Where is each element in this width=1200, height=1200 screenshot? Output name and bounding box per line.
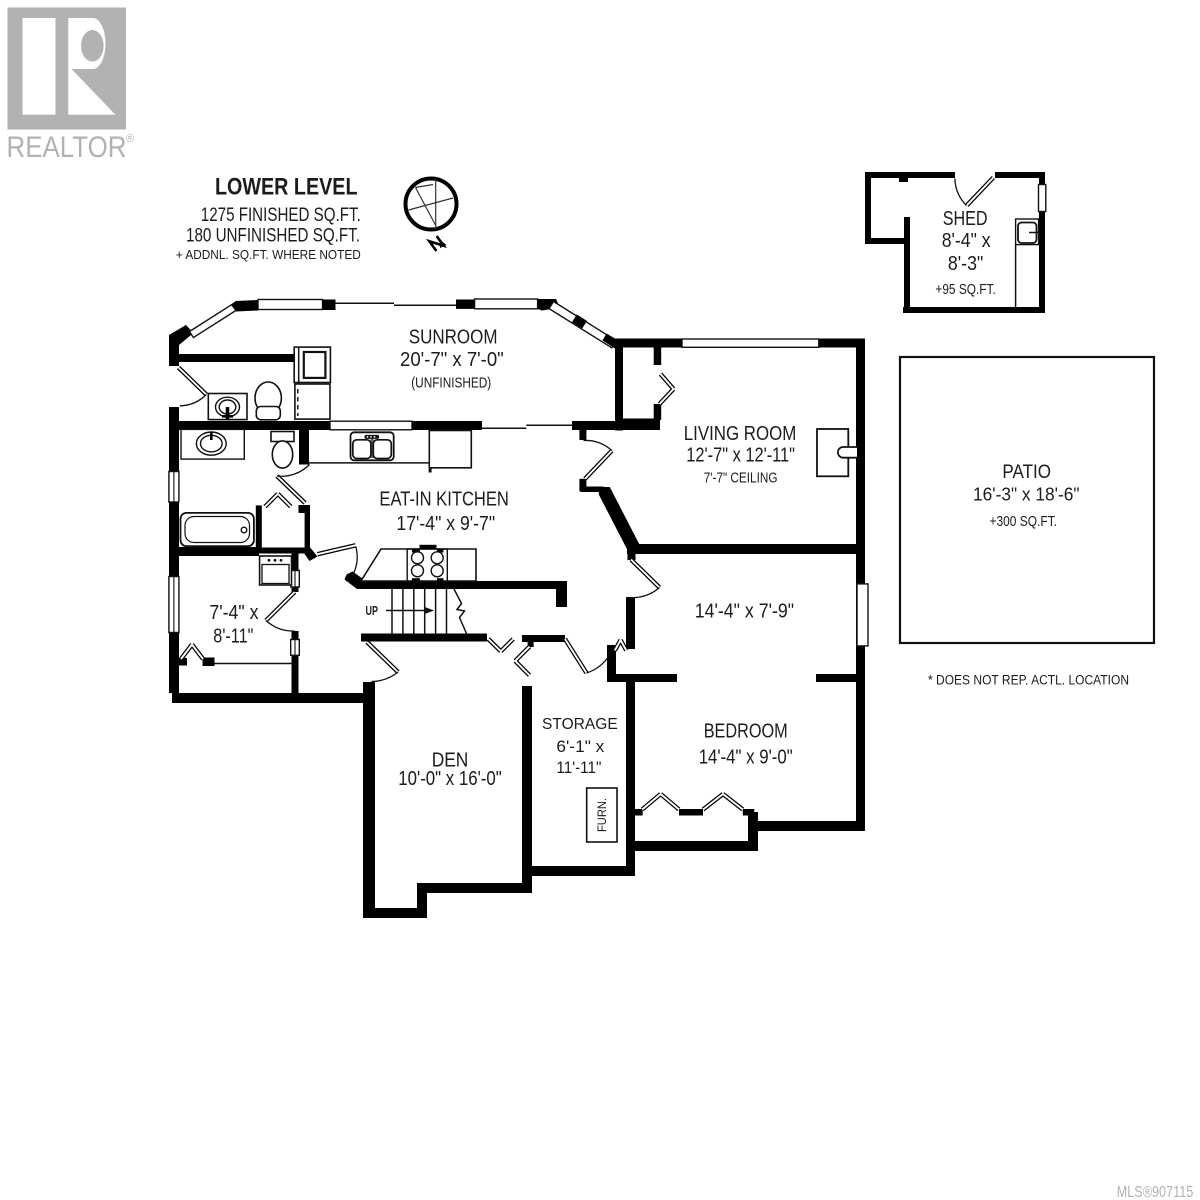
svg-text:11'-11": 11'-11": [556, 758, 601, 777]
svg-text:MLS®907115: MLS®907115: [1117, 1184, 1194, 1200]
svg-text:SUNROOM: SUNROOM: [409, 327, 498, 349]
svg-text:FURN.: FURN.: [597, 798, 609, 832]
svg-text:+95 SQ.FT.: +95 SQ.FT.: [935, 282, 995, 298]
svg-text:180 UNFINISHED SQ.FT.: 180 UNFINISHED SQ.FT.: [186, 226, 360, 247]
svg-text:20'-7" x 7'-0": 20'-7" x 7'-0": [400, 348, 504, 371]
svg-text:STORAGE: STORAGE: [542, 716, 618, 733]
svg-text:+ ADDNL. SQ.FT. WHERE NOTED: + ADDNL. SQ.FT. WHERE NOTED: [176, 247, 361, 262]
svg-text:SHED: SHED: [943, 208, 988, 230]
svg-text:LOWER LEVEL: LOWER LEVEL: [215, 174, 358, 201]
svg-text:1275 FINISHED SQ.FT.: 1275 FINISHED SQ.FT.: [201, 204, 361, 226]
svg-text:BEDROOM: BEDROOM: [704, 721, 788, 743]
svg-text:UP: UP: [366, 603, 379, 618]
svg-text:+300 SQ.FT.: +300 SQ.FT.: [990, 513, 1058, 530]
svg-text:8'-4" x: 8'-4" x: [942, 230, 991, 252]
svg-text:EAT-IN KITCHEN: EAT-IN KITCHEN: [379, 489, 509, 511]
svg-text:7'-7" CEILING: 7'-7" CEILING: [704, 471, 778, 487]
svg-text:6'-1" x: 6'-1" x: [556, 737, 604, 756]
svg-text:17'-4" x 9'-7": 17'-4" x 9'-7": [396, 512, 495, 535]
svg-text:7'-4" x: 7'-4" x: [209, 601, 259, 624]
svg-text:16'-3" x 18'-6": 16'-3" x 18'-6": [973, 484, 1080, 505]
svg-text:* DOES NOT REP. ACTL. LOCATION: * DOES NOT REP. ACTL. LOCATION: [928, 673, 1129, 688]
svg-text:®: ®: [126, 133, 134, 145]
svg-text:(UNFINISHED): (UNFINISHED): [411, 376, 491, 392]
svg-text:8'-11": 8'-11": [213, 625, 253, 648]
svg-text:REALTOR: REALTOR: [7, 131, 127, 164]
svg-text:14'-4" x 7'-9": 14'-4" x 7'-9": [695, 600, 794, 623]
svg-text:PATIO: PATIO: [1002, 462, 1051, 483]
svg-text:14'-4" x 9'-0": 14'-4" x 9'-0": [699, 746, 793, 769]
svg-text:8'-3": 8'-3": [948, 253, 983, 275]
svg-text:12'-7" x 12'-11": 12'-7" x 12'-11": [686, 443, 795, 466]
svg-text:10'-0" x 16'-0": 10'-0" x 16'-0": [398, 767, 501, 790]
svg-text:LIVING ROOM: LIVING ROOM: [684, 423, 797, 445]
